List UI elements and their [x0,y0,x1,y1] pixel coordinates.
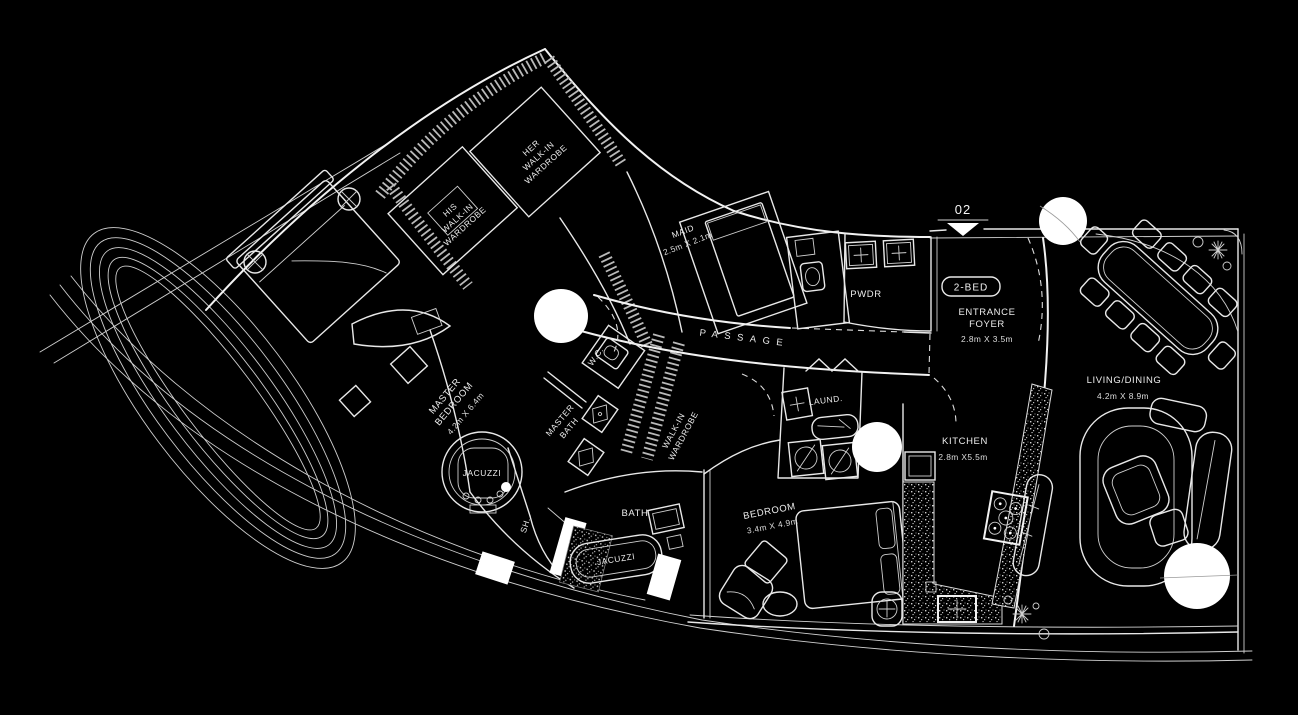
column-circle [534,289,588,343]
living-dining-dims: 4.2m X 8.9m [1097,391,1149,401]
unit-number: 02 [955,202,971,217]
kitchen-dims: 2.8m X5.5m [938,452,987,462]
column-circle [852,422,902,472]
living-dining-name: LIVING/DINING [1087,375,1162,386]
background [0,0,1298,715]
floor-plan-page: HIS WALK-IN WARDROBE HER WALK-IN WARDROB… [0,0,1298,715]
column-circle [1039,197,1087,245]
unit-type-label: 2-BED [954,283,988,294]
foyer-line1: ENTRANCE [958,307,1015,318]
foyer-line2: FOYER [969,319,1005,330]
floor-plan-canvas: HIS WALK-IN WARDROBE HER WALK-IN WARDROB… [0,0,1298,715]
kitchen-name: KITCHEN [942,436,988,447]
bath-label: BATH [621,508,648,519]
pwdr-label: PWDR [850,289,881,300]
foyer-dims: 2.8m X 3.5m [961,334,1013,344]
master-jacuzzi-label: JACUZZI [463,468,502,478]
